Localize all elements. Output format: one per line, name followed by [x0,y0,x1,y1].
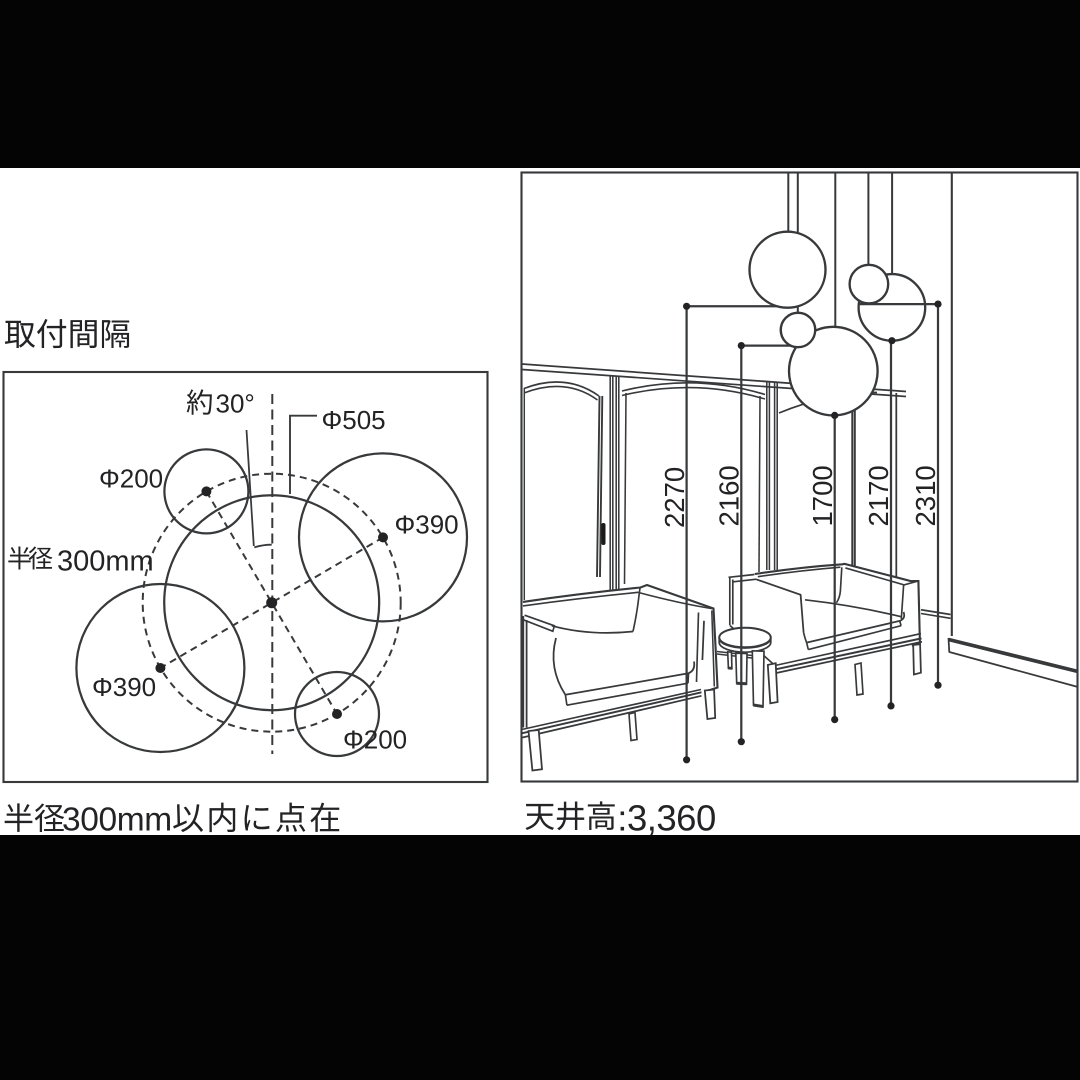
svg-text::3,360: :3,360 [617,798,715,839]
svg-text:300mm: 300mm [62,802,172,839]
svg-text:2270: 2270 [659,467,690,528]
svg-text:Φ200: Φ200 [343,725,407,755]
svg-text:2310: 2310 [910,465,941,526]
svg-text:2170: 2170 [863,465,894,526]
svg-text:Φ505: Φ505 [322,405,386,435]
svg-text:30°: 30° [216,389,255,419]
svg-text:1700: 1700 [807,465,838,526]
svg-text:Φ200: Φ200 [99,464,163,494]
svg-text:Φ390: Φ390 [395,510,459,540]
svg-text:Φ390: Φ390 [92,672,156,702]
svg-text:2160: 2160 [714,465,745,526]
svg-text:300mm: 300mm [57,546,154,578]
